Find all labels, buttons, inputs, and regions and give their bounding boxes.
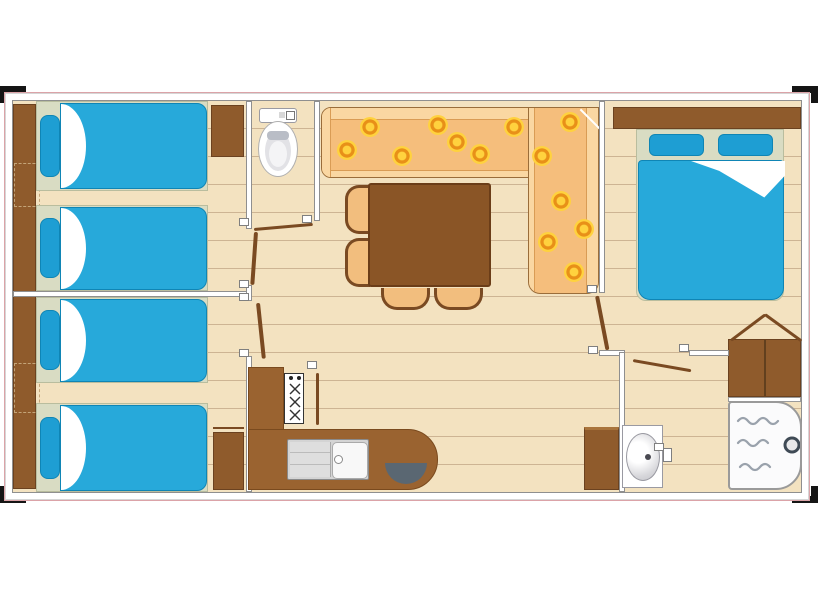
floor-plan-canvas	[0, 0, 818, 590]
wardrobe	[728, 339, 801, 397]
bedside-wardrobe-2	[213, 432, 244, 490]
dining-table	[368, 183, 491, 287]
bed-duvet	[638, 160, 784, 300]
double-bed	[636, 129, 784, 301]
dining-chair-3	[381, 288, 430, 310]
sofa-front-trim	[529, 108, 535, 293]
single-bed-4	[36, 403, 208, 492]
sheet-fold	[691, 161, 785, 199]
kitchen-counter-vertical	[248, 367, 284, 433]
toilet-bowl	[258, 121, 298, 177]
single-bed-2	[36, 205, 208, 291]
floor	[12, 100, 802, 493]
bed-pillow	[40, 218, 60, 278]
washbasin-unit	[622, 425, 663, 488]
hob	[284, 373, 304, 424]
sink-tap	[334, 455, 343, 464]
shower-drain	[785, 438, 799, 452]
shower	[728, 401, 802, 490]
single-bed-1	[36, 101, 208, 191]
wardrobe-door-swing-left	[730, 313, 766, 341]
bathroom-door	[633, 359, 692, 372]
corner-sofa-right	[528, 107, 599, 294]
wardrobe-door-divider	[764, 340, 766, 396]
wardrobe-door-swing-right	[764, 313, 802, 342]
toilet-bowl-highlight	[269, 141, 287, 167]
bed-pillow	[649, 134, 704, 156]
wall-twin-bedrooms	[13, 291, 251, 297]
bedside-wardrobe-2-top-edge	[213, 427, 244, 429]
washbasin-bowl	[626, 433, 660, 481]
wall-hallway-upper	[246, 101, 252, 229]
hall-door-leaf	[316, 373, 319, 425]
washbasin-tap	[663, 448, 672, 462]
door-hinge-bracket	[307, 361, 317, 369]
toilet-seat-hinge	[267, 131, 289, 140]
bedroom1-door	[250, 232, 257, 285]
exterior-wall	[4, 92, 810, 501]
bed-pillow	[40, 417, 60, 479]
single-bed-3	[36, 297, 208, 383]
double-bedroom-door	[595, 296, 609, 351]
door-hinge-bracket	[588, 346, 598, 354]
bed-pillow	[40, 115, 60, 177]
wc-door	[254, 223, 313, 231]
sink-drainer	[290, 442, 331, 477]
dining-chair-2	[345, 238, 370, 287]
wall-wc-right	[314, 101, 320, 221]
bed-pillow	[40, 310, 60, 370]
door-hinge-bracket	[302, 215, 312, 223]
door-hinge-bracket	[679, 344, 689, 352]
wall-bathroom-right-stub	[689, 350, 729, 356]
bed-pillow	[718, 134, 773, 156]
washbasin-drain	[645, 454, 651, 460]
sofa-back-trim	[586, 108, 598, 293]
bedside-wardrobe-1	[211, 105, 244, 157]
sofa-armrest	[322, 108, 331, 177]
wall-hallway-stub	[246, 285, 252, 301]
toilet-flush-button	[279, 112, 285, 118]
corner-mark-top-right-v	[811, 86, 818, 103]
corner-mark-bottom-right-v	[811, 486, 818, 503]
double-bed-headboard	[613, 107, 801, 129]
dining-chair-1	[345, 185, 370, 234]
shower-water-icon	[730, 403, 800, 488]
bedroom2-door	[256, 303, 265, 359]
hob-burners-icon	[285, 374, 305, 425]
dining-chair-4	[434, 288, 483, 310]
toilet-flush-button	[286, 111, 295, 120]
wall-double-bedroom-left	[599, 101, 605, 293]
sink-unit	[287, 439, 369, 480]
living-cabinet	[584, 427, 619, 490]
